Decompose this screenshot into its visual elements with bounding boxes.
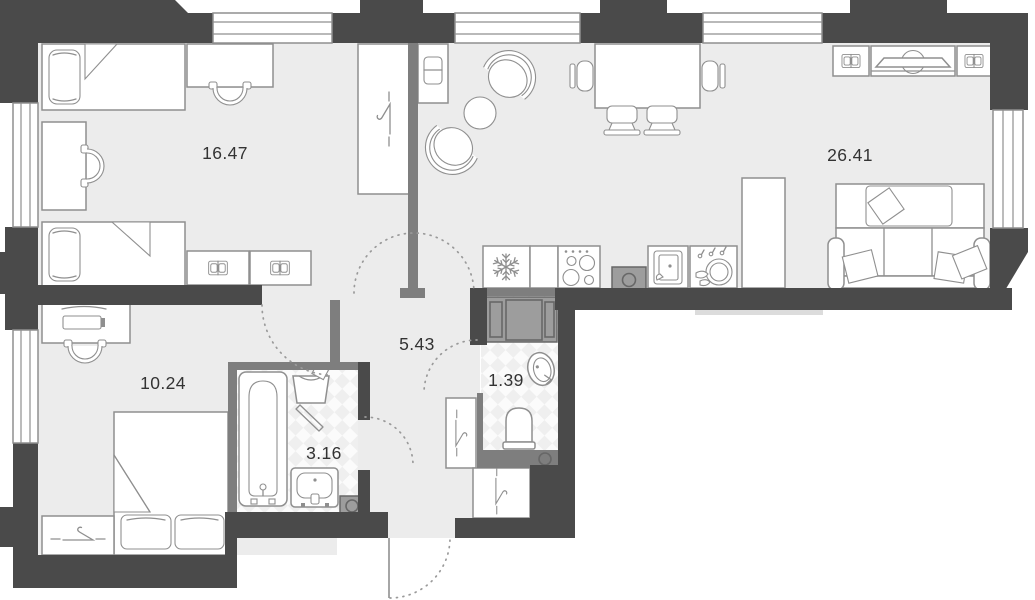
floor-entry-threshold [388, 518, 455, 538]
dining-chair-bottom-1 [604, 106, 640, 135]
sofa-armrest [828, 238, 844, 290]
wardrobe-1 [358, 44, 410, 194]
bathtub [239, 372, 287, 506]
window-top-1 [213, 13, 332, 43]
wall-bedroom1-south [13, 285, 262, 305]
drain-icon [260, 484, 266, 490]
dining-chair-left [570, 61, 593, 91]
partition-bedroom1-living [408, 43, 418, 296]
window-top-2 [455, 13, 580, 43]
label-living-kitchen: 26.41 [827, 145, 873, 165]
nightstands [187, 251, 311, 285]
wall-bathroom-right-upper [358, 362, 370, 420]
single-bed-2 [42, 222, 185, 287]
open-book-icon [271, 261, 290, 275]
side-table [418, 44, 448, 103]
dish-rack-unit [690, 246, 737, 288]
tv-console [833, 46, 991, 76]
label-bedroom-1: 16.47 [202, 143, 248, 163]
single-bed-1 [42, 44, 185, 110]
wall-bathroom-south [225, 512, 388, 538]
wardrobe-2 [42, 516, 114, 555]
dining-table [595, 44, 700, 108]
stove [558, 246, 600, 288]
wc-wall-left [477, 393, 483, 450]
washing-machine [485, 297, 557, 342]
partition-bedroom2-hall [330, 300, 340, 362]
fridge [483, 246, 530, 288]
dining-chair-right [702, 61, 725, 91]
floor-plan-drawing: 16.47 26.41 10.24 5.43 3.16 1.39 [0, 0, 1035, 600]
bathroom-sink [291, 468, 338, 507]
wall-bathroom-right-lower [358, 470, 370, 512]
wall-right-bottom [990, 228, 1028, 292]
balcony-edge [695, 310, 823, 315]
floor-plan-page: 16.47 26.41 10.24 5.43 3.16 1.39 [0, 0, 1035, 600]
wall-right-top [990, 13, 1028, 110]
bathroom-wall-top [228, 362, 358, 370]
door-arc-entry [390, 538, 450, 598]
window-left-2 [13, 330, 38, 443]
window-right [993, 110, 1023, 228]
label-bedroom-2: 10.24 [140, 373, 186, 393]
open-book-icon [842, 54, 860, 67]
label-toilet: 1.39 [488, 370, 524, 390]
wall-wc-right [558, 288, 575, 465]
kitchen-peninsula [742, 178, 785, 288]
kitchen-sink-unit [648, 246, 688, 288]
faucet-icon [311, 494, 319, 504]
sofa [828, 184, 990, 290]
counter [530, 246, 558, 288]
label-bathroom: 3.16 [306, 443, 342, 463]
open-book-icon [965, 54, 983, 67]
laptop-icon [63, 316, 101, 329]
window-left-1 [13, 103, 38, 227]
bathroom-wall-left [228, 362, 237, 512]
double-bed [114, 412, 228, 555]
label-hallway: 5.43 [399, 334, 435, 354]
wall-bottom-left [13, 555, 237, 588]
toilet-bowl [503, 408, 535, 449]
open-book-icon [209, 261, 228, 275]
wall-left-pier [5, 227, 38, 330]
wardrobe-3 [446, 398, 476, 468]
dining-chair-bottom-2 [644, 106, 680, 135]
kitchen-niche-wall [483, 288, 558, 296]
wall-south-upper-band [555, 288, 1012, 310]
window-top-3 [703, 13, 822, 43]
wardrobe-4 [473, 468, 530, 518]
coffee-table-icon [464, 97, 496, 129]
wall-niche-left [470, 288, 487, 345]
